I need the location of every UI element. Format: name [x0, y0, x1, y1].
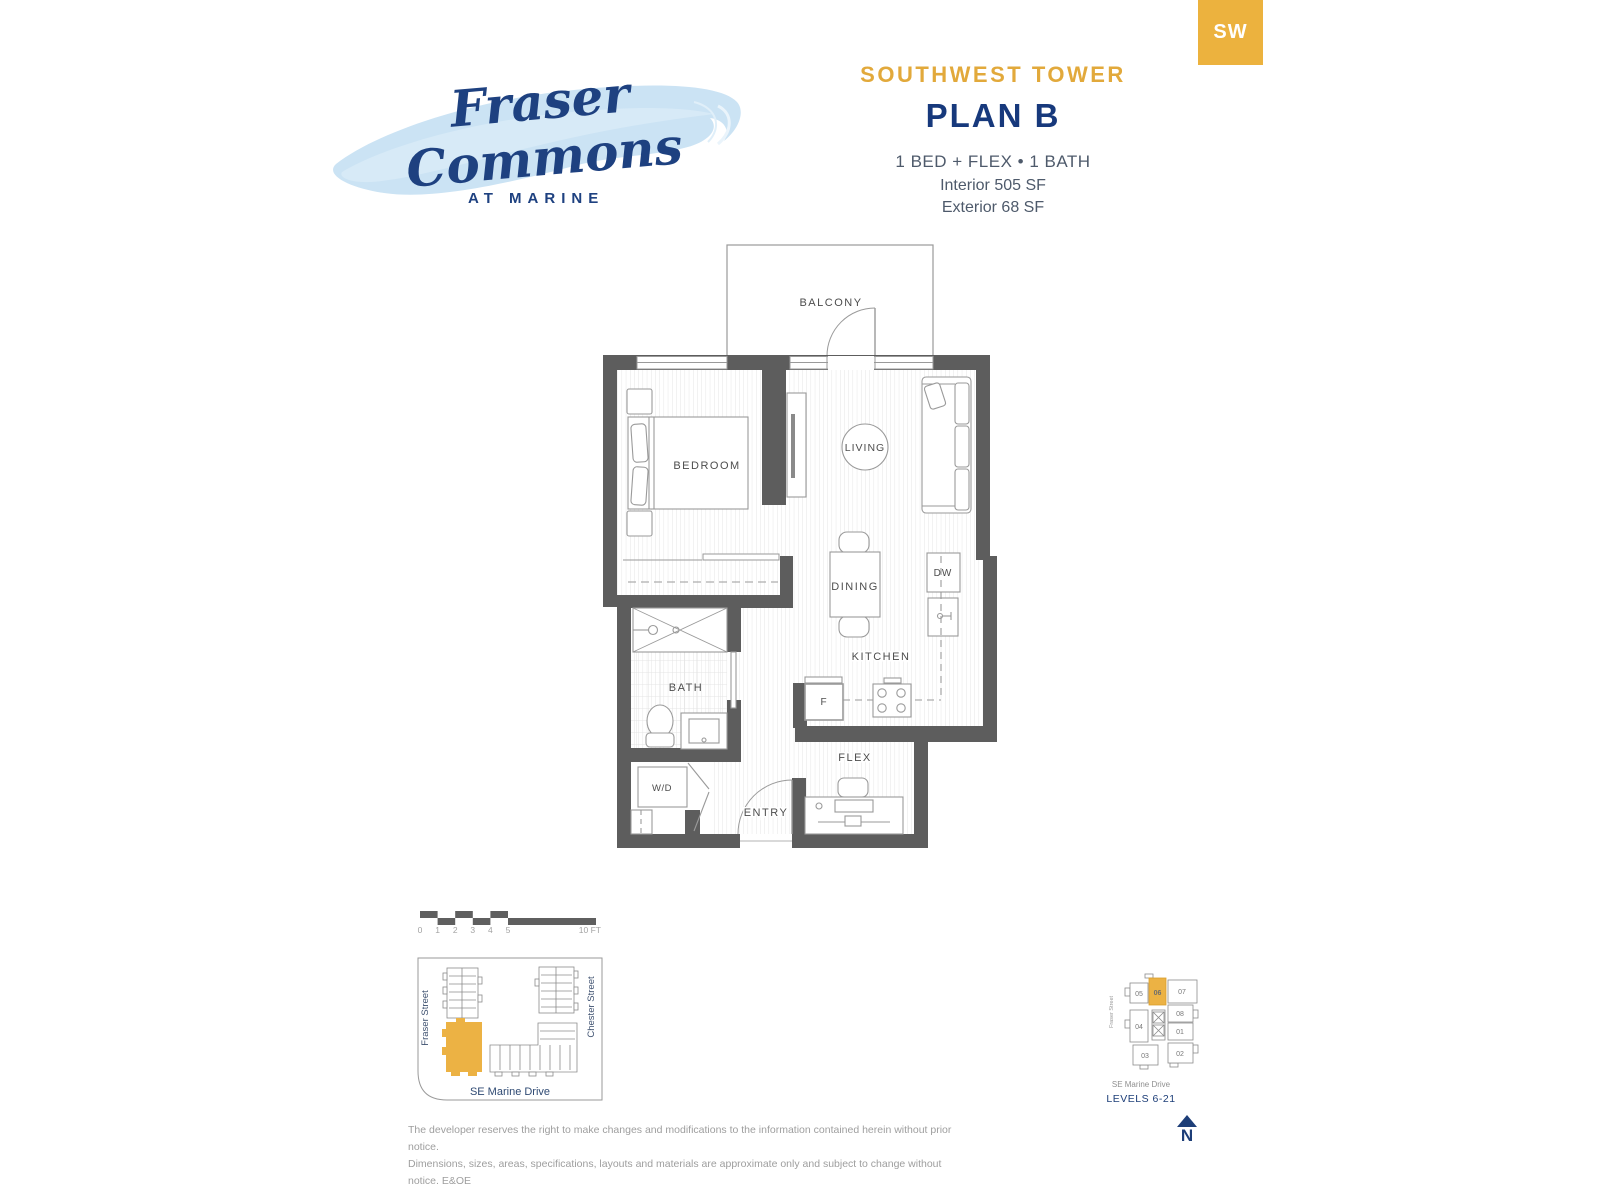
- plan-config: 1 BED + FLEX • 1 BATH: [760, 152, 1226, 172]
- unit-06: 06: [1154, 990, 1162, 997]
- exterior-area: Exterior 68 SF: [760, 199, 1226, 217]
- key-plan-units: [1125, 974, 1198, 1069]
- scale-bar: 0 1 2 3 4 5 10 FT: [408, 898, 608, 934]
- site-building-ne: [535, 967, 578, 1013]
- site-street-left: Fraser Street: [420, 990, 431, 1046]
- dishwasher-label: DW: [934, 568, 953, 579]
- key-plan-street-left: Fraser Street: [1109, 995, 1115, 1028]
- key-plan: 05 06 07 08 01 04 03 02 Fraser Street: [1075, 950, 1215, 1078]
- site-street-bottom: SE Marine Drive: [470, 1086, 550, 1098]
- washer-dryer-label: W/D: [652, 783, 672, 794]
- unit-08: 08: [1176, 1011, 1184, 1018]
- kitchen-label: KITCHEN: [852, 651, 911, 663]
- floorplan-sheet: SW Fraser Commons AT MARINE SOUTHWEST TO…: [0, 0, 1600, 1200]
- site-street-right: Chester Street: [586, 976, 597, 1038]
- unit-02: 02: [1176, 1051, 1184, 1058]
- site-building-nw: [443, 968, 482, 1018]
- disclaimer-line1: The developer reserves the right to make…: [408, 1122, 968, 1156]
- svg-text:1: 1: [435, 925, 440, 934]
- floor-plan: BALCONY: [595, 238, 1005, 853]
- tower-title: SOUTHWEST TOWER: [760, 62, 1226, 88]
- disclaimer: The developer reserves the right to make…: [408, 1122, 968, 1190]
- balcony-door-opening: [828, 356, 874, 370]
- exterior-mask: [928, 742, 997, 850]
- unit-01: 01: [1176, 1029, 1184, 1036]
- logo-tagline: AT MARINE: [468, 190, 604, 207]
- flex-label: FLEX: [838, 752, 872, 764]
- balcony-label: BALCONY: [799, 297, 862, 309]
- disclaimer-line2: Dimensions, sizes, areas, specifications…: [408, 1156, 968, 1190]
- entry-label: ENTRY: [744, 807, 789, 819]
- svg-text:0: 0: [418, 925, 423, 934]
- site-building-se: [490, 1023, 577, 1076]
- north-arrow: N: [1176, 1115, 1198, 1145]
- fridge-label: F: [820, 697, 827, 708]
- svg-text:3: 3: [470, 925, 475, 934]
- bath-label: BATH: [669, 682, 704, 694]
- svg-text:4: 4: [488, 925, 493, 934]
- site-map: Fraser Street Chester Street SE Marine D…: [415, 955, 605, 1103]
- svg-text:2: 2: [453, 925, 458, 934]
- svg-text:10 FT: 10 FT: [579, 925, 601, 934]
- key-plan-street-bottom: SE Marine Drive: [1078, 1080, 1204, 1089]
- unit-04: 04: [1135, 1024, 1143, 1031]
- tower-badge: SW: [1198, 0, 1263, 65]
- bedroom-label: BEDROOM: [673, 460, 740, 472]
- unit-05: 05: [1135, 991, 1143, 998]
- svg-text:5: 5: [506, 925, 511, 934]
- scale-labels: 0 1 2 3 4 5 10 FT: [418, 925, 601, 934]
- site-building-sw-highlight: [442, 1018, 482, 1076]
- plan-title: PLAN B: [760, 97, 1226, 135]
- dining-label: DINING: [831, 581, 879, 593]
- living-label: LIVING: [845, 442, 885, 454]
- north-label: N: [1176, 1127, 1198, 1145]
- scale-blocks: [420, 911, 596, 925]
- interior-area: Interior 505 SF: [760, 177, 1226, 195]
- key-plan-levels: LEVELS 6-21: [1078, 1093, 1204, 1105]
- unit-07: 07: [1178, 989, 1186, 996]
- logo: Fraser Commons AT MARINE: [322, 44, 762, 239]
- unit-03: 03: [1141, 1053, 1149, 1060]
